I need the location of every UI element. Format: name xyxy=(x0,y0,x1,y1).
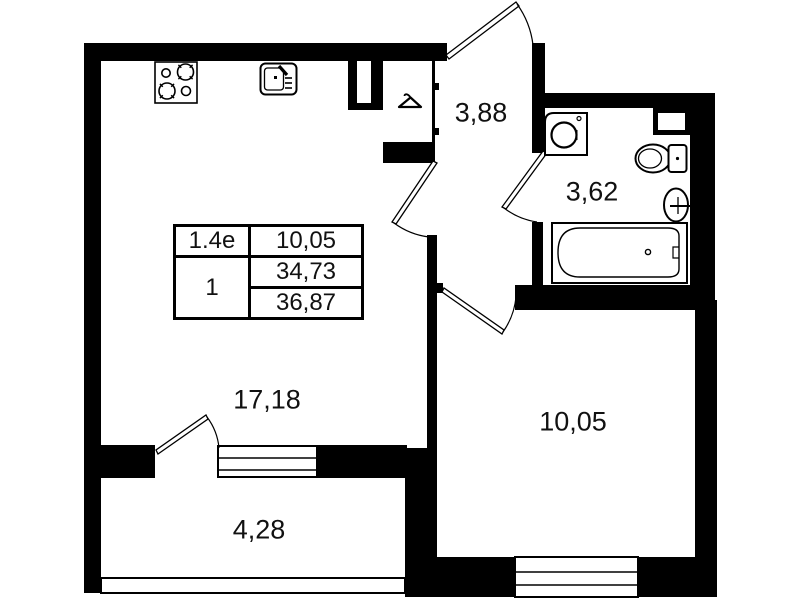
room-count-cell: 1 xyxy=(175,257,250,319)
living-balcony-window xyxy=(218,446,317,477)
wall-niche-bottom xyxy=(348,103,383,110)
total-area-cell: 36,87 xyxy=(250,288,363,319)
balcony-door xyxy=(156,415,219,454)
wall-niche-right xyxy=(371,61,383,110)
wall-bedroom-bottom-right xyxy=(638,557,717,597)
balcony-window xyxy=(101,578,405,593)
hanger-icon xyxy=(399,94,421,107)
wardrobe-partition xyxy=(432,61,439,142)
balcony-area-label: 4,28 xyxy=(233,515,286,546)
living-area-cell: 34,73 xyxy=(250,257,363,288)
unit-type-cell: 1.4e xyxy=(175,226,250,257)
bedroom-area-label: 10,05 xyxy=(539,407,607,438)
wall-bathroom-top xyxy=(532,93,715,108)
wall-niche-left xyxy=(348,61,357,110)
wall-left xyxy=(84,43,101,593)
floor-plan: 17,18 3,88 3,62 10,05 4,28 1.4e 10,05 1 … xyxy=(0,0,799,600)
wall-bedroom-bottom-left xyxy=(433,557,515,597)
hallway-area-label: 3,88 xyxy=(455,98,508,129)
hallway-living-door xyxy=(392,161,437,237)
wall-bathroom-right xyxy=(690,108,715,310)
apartment-info-table: 1.4e 10,05 1 34,73 36,87 xyxy=(173,224,364,320)
wall-wardrobe-bottom xyxy=(383,142,435,163)
vent-shaft-opening xyxy=(658,113,685,130)
bathtub-icon xyxy=(552,223,687,283)
stove-icon xyxy=(155,62,197,103)
bedroom-window xyxy=(515,557,638,597)
living-kitchen-area-label: 17,18 xyxy=(233,385,301,416)
bathroom-door xyxy=(502,151,547,222)
wall-balcony-right xyxy=(317,445,407,478)
wall-balcony-side xyxy=(405,448,437,597)
wall-bedroom-door-stub xyxy=(427,283,443,293)
wall-bathroom-left-lower xyxy=(532,222,543,288)
bedroom-door xyxy=(442,288,516,334)
kitchen-sink-icon xyxy=(261,64,297,95)
wall-top xyxy=(84,43,447,61)
toilet-icon xyxy=(636,145,687,173)
wall-entrance-right xyxy=(532,43,545,153)
wall-bathroom-bedroom xyxy=(515,285,715,310)
kitchen-living-area-cell: 10,05 xyxy=(250,226,363,257)
wall-bedroom-right xyxy=(695,300,717,557)
washing-machine-icon xyxy=(545,113,587,155)
walls xyxy=(84,43,717,597)
floor-plan-drawing xyxy=(0,0,799,600)
wall-balcony-left xyxy=(100,445,155,478)
entrance-door xyxy=(446,2,533,59)
bathroom-area-label: 3,62 xyxy=(566,177,619,208)
